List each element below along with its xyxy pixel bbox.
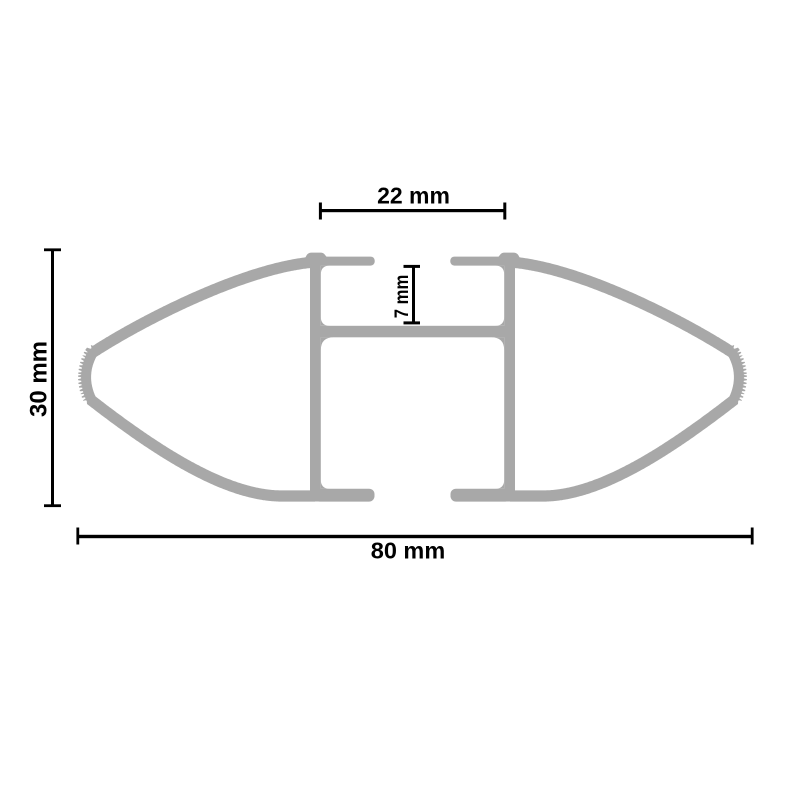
svg-text:80 mm: 80 mm	[371, 538, 445, 564]
svg-text:22 mm: 22 mm	[377, 183, 450, 209]
svg-text:7 mm: 7 mm	[392, 275, 413, 319]
svg-text:30 mm: 30 mm	[26, 341, 53, 417]
